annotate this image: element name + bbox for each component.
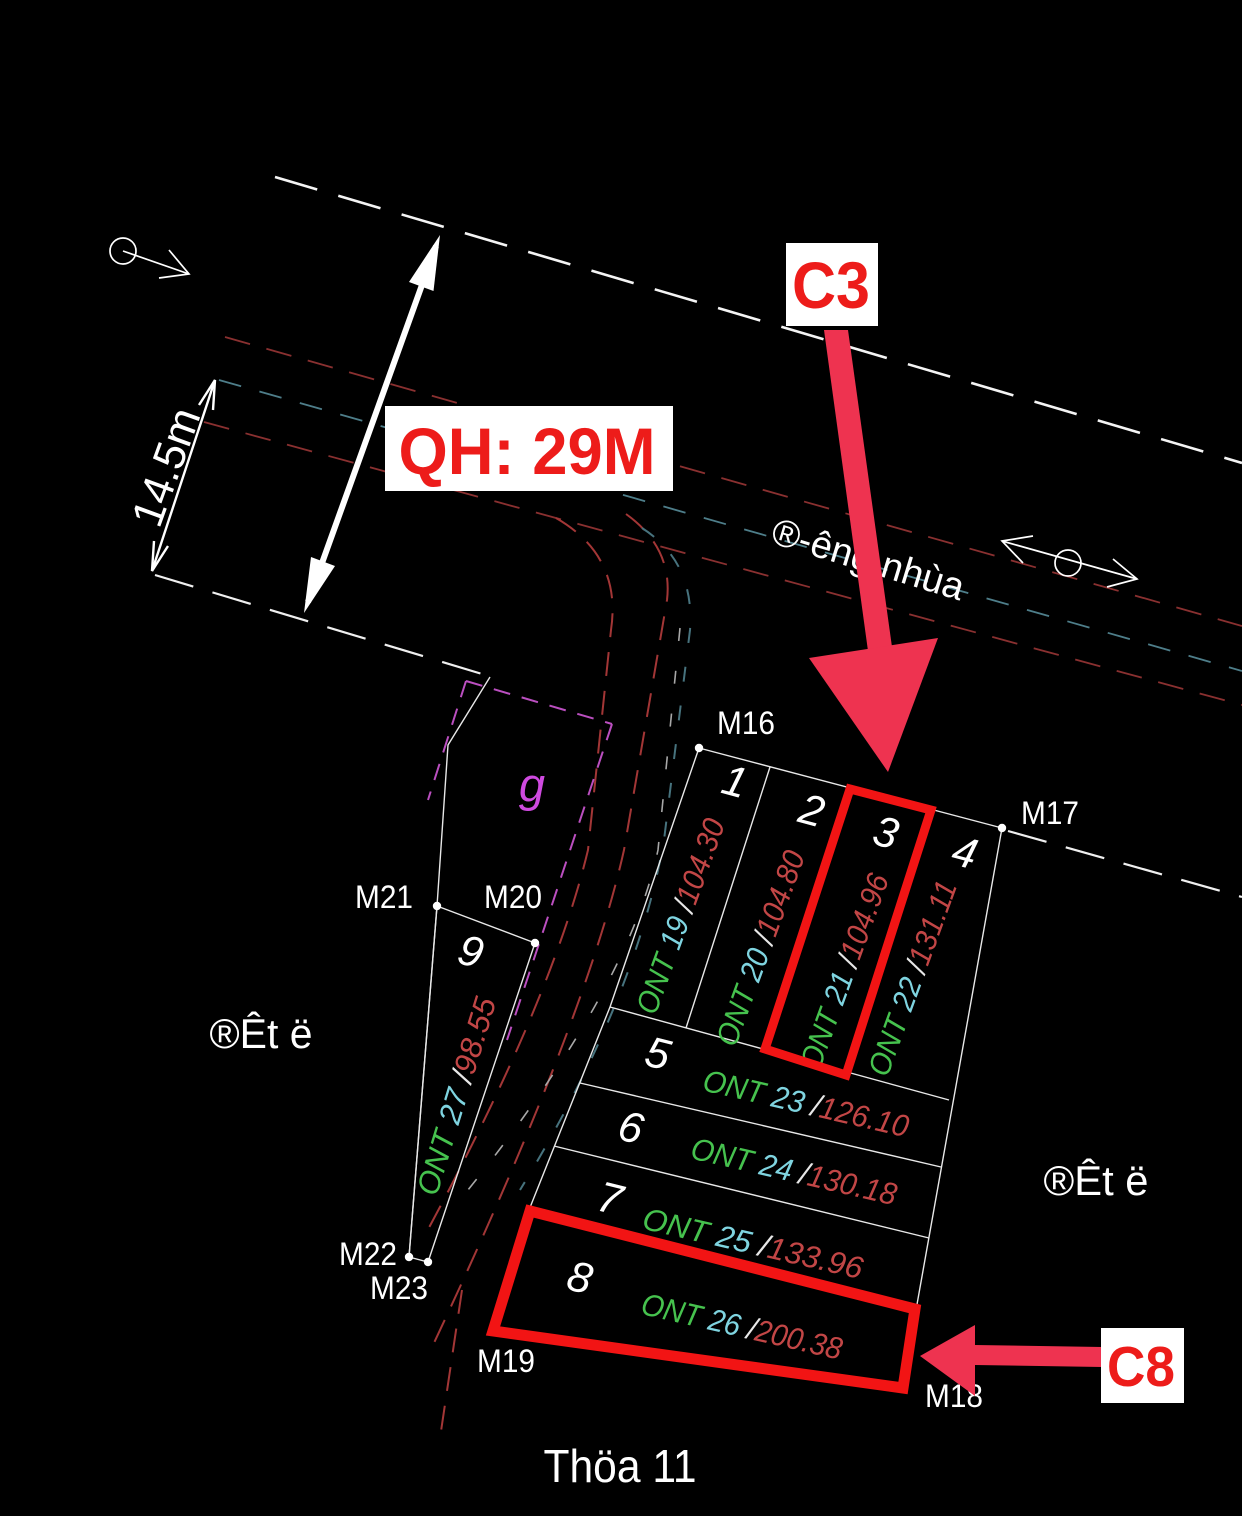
svg-text:Thöa 11: Thöa 11 [544,1440,697,1492]
svg-text:C8: C8 [1107,1335,1175,1399]
svg-text:M22: M22 [339,1236,397,1272]
svg-text:C3: C3 [792,248,870,322]
svg-text:M20: M20 [484,879,542,915]
svg-text:M21: M21 [355,879,413,915]
svg-text:®Êt ë: ®Êt ë [210,1010,313,1057]
svg-text:M17: M17 [1021,795,1079,831]
svg-text:QH: 29M: QH: 29M [399,414,656,488]
svg-text:M23: M23 [370,1270,428,1306]
svg-text:M16: M16 [717,705,775,741]
svg-text:M19: M19 [477,1343,535,1379]
svg-text:g: g [519,758,545,811]
svg-text:®Êt ë: ®Êt ë [1044,1157,1149,1204]
